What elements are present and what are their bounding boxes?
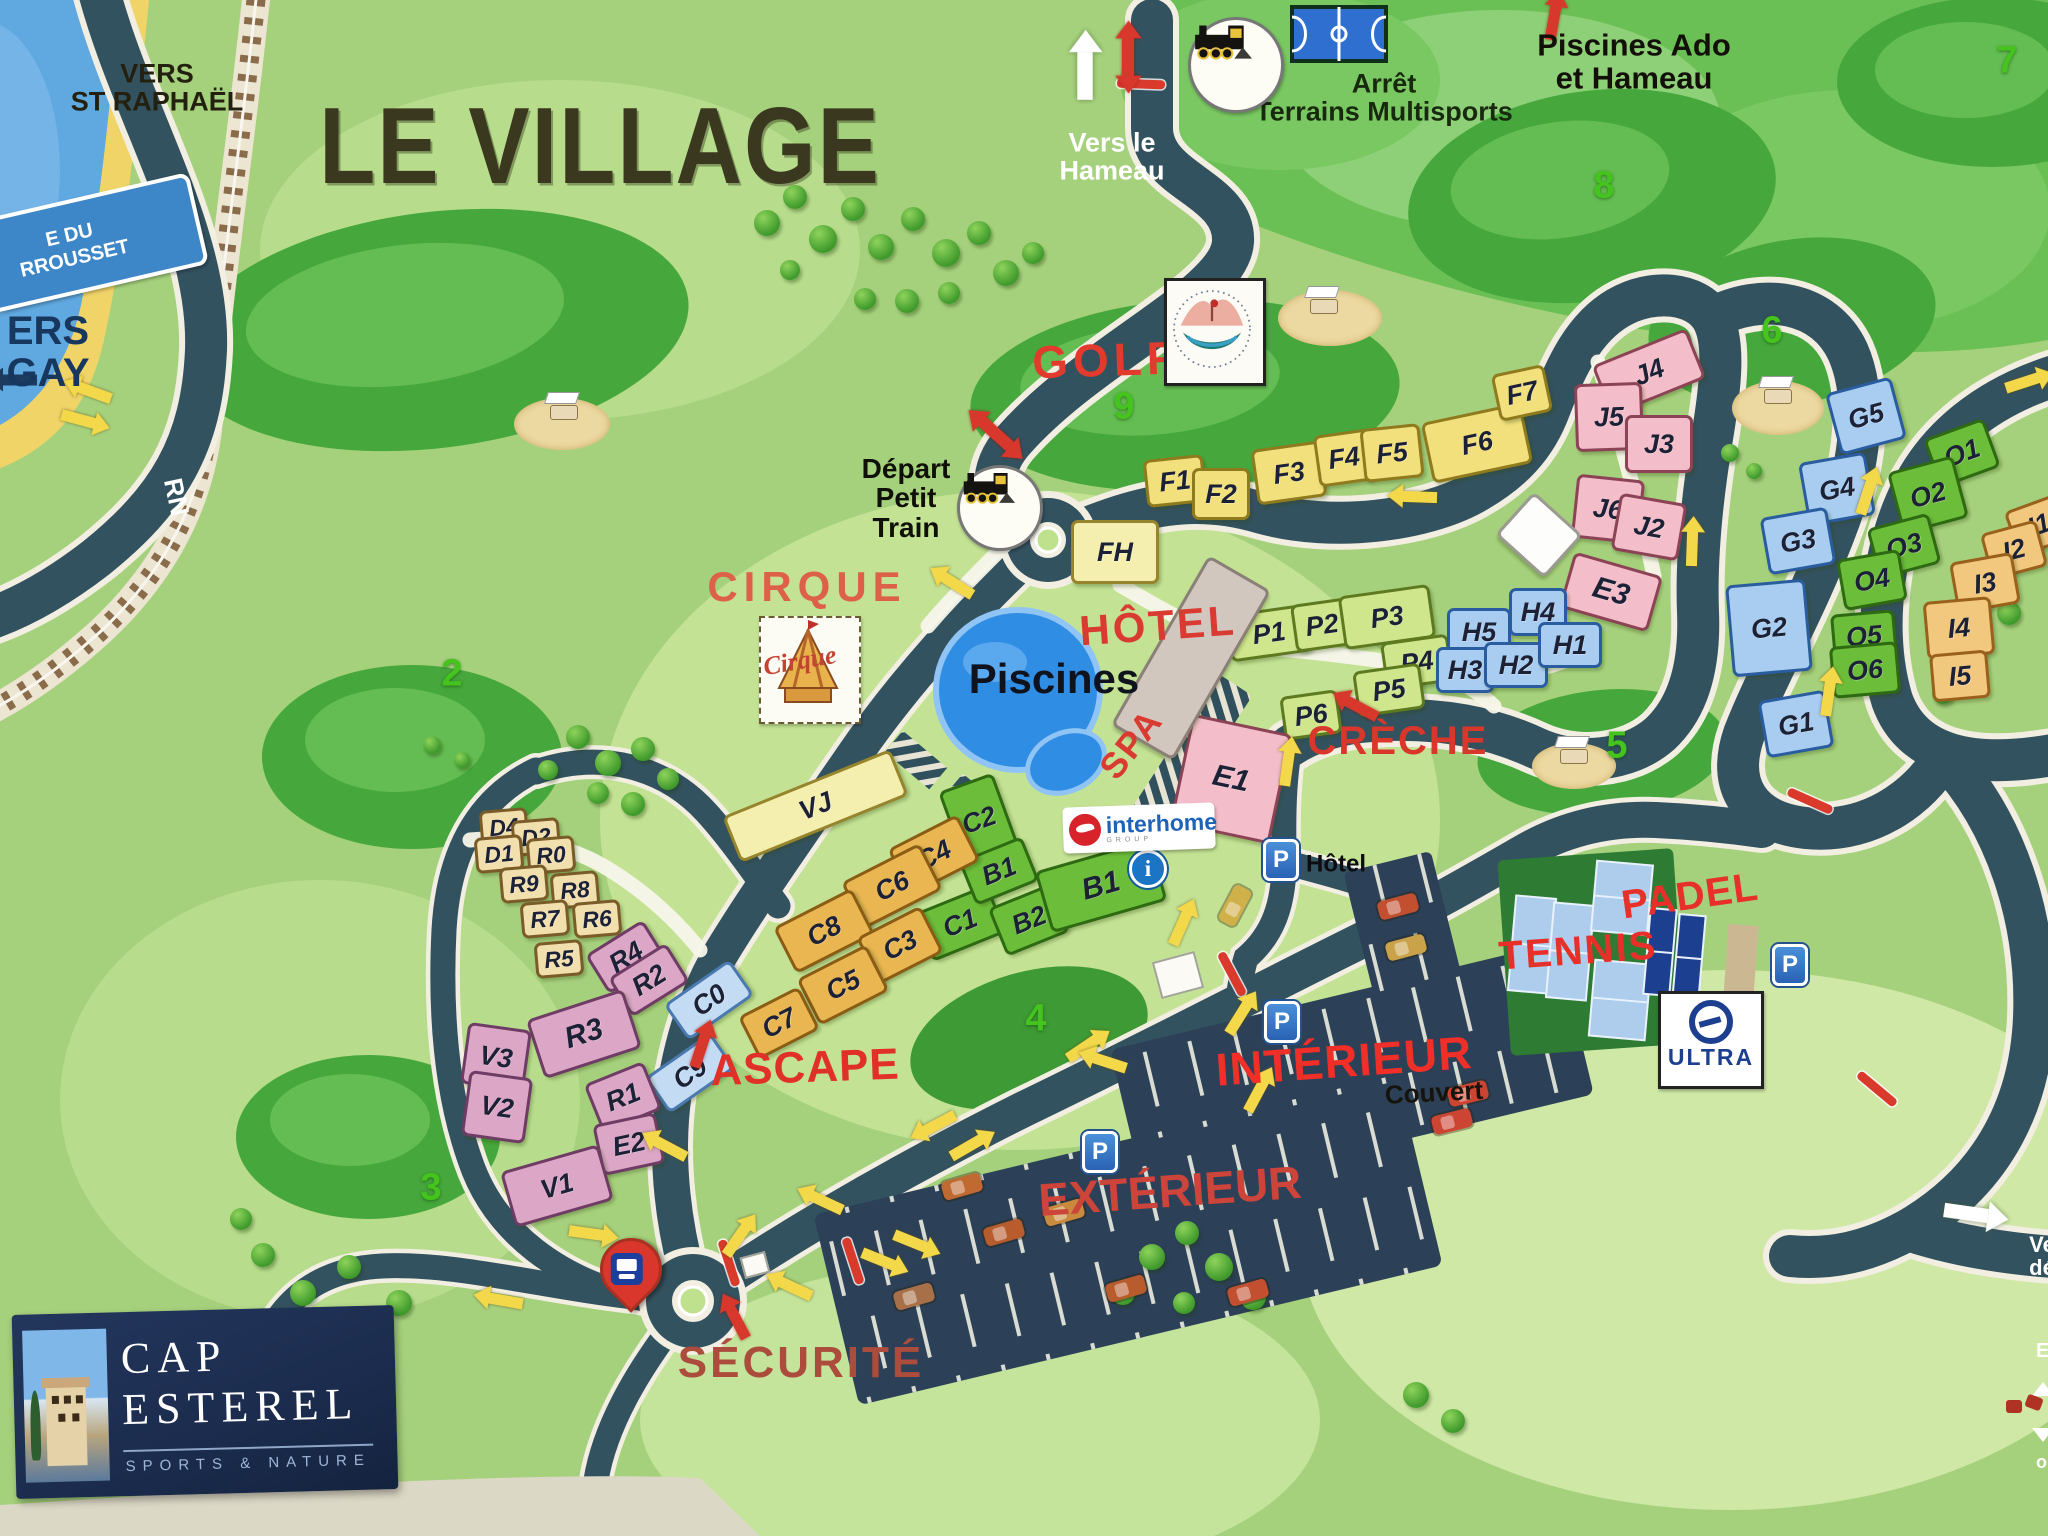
building-label: J5 — [1593, 401, 1624, 433]
golf-cart-icon — [1755, 376, 1797, 408]
tree — [967, 221, 991, 245]
golf-hole-number: 4 — [1025, 998, 1046, 1041]
label-cirque: CIRQUE — [707, 565, 906, 609]
direction-arrow — [1122, 38, 1134, 75]
building-label: F4 — [1326, 440, 1362, 475]
golf-cart-icon — [541, 392, 583, 424]
building-label: H2 — [1499, 650, 1534, 681]
edge-triangle-up — [2032, 1382, 2048, 1396]
train-stop-icon-depart — [957, 465, 1043, 551]
edge-legend-fragment: o — [2036, 1452, 2047, 1473]
golf-hole-number: 9 — [1113, 386, 1134, 429]
building-label: F5 — [1375, 436, 1410, 470]
building-label: F1 — [1158, 464, 1193, 498]
tree — [230, 1208, 252, 1230]
direction-arrow — [1077, 52, 1092, 100]
building-label: H3 — [1448, 655, 1483, 686]
tree — [1205, 1253, 1233, 1281]
tree — [938, 282, 960, 304]
building-label: F7 — [1503, 375, 1540, 412]
building-FH: FH — [1071, 520, 1159, 584]
golf-hole-number: 3 — [420, 1167, 441, 1210]
label-hotel-parking: Hôtel — [1306, 851, 1366, 876]
resort-map: F1F2F3F4F5F6F7FHVJP1P2P3P4P5P6J4J5J3J6J2… — [0, 0, 2048, 1536]
building-label: C5 — [821, 963, 866, 1006]
building-label: G4 — [1817, 471, 1858, 508]
building-label: C6 — [870, 864, 915, 907]
label-securite: SÉCURITÉ — [678, 1340, 924, 1386]
parking-icon: P — [1263, 839, 1299, 881]
tree — [1721, 444, 1739, 462]
tree — [657, 768, 679, 790]
ultra-e-icon — [1689, 1000, 1733, 1044]
info-icon: i — [1129, 850, 1167, 888]
cap-esterel-line1: CAP — [120, 1328, 358, 1385]
building-label: C8 — [802, 909, 847, 952]
building-label: E3 — [1589, 571, 1634, 614]
building-label: V1 — [537, 1167, 577, 1206]
building-label: F2 — [1205, 479, 1237, 510]
label-edge-right-directions: Ve dé — [2029, 1233, 2048, 1279]
train-stop-icon-hameau — [1188, 17, 1284, 113]
building-label: R7 — [529, 904, 561, 933]
building-label: O2 — [1907, 475, 1950, 514]
building-F5: F5 — [1359, 423, 1424, 483]
tree — [454, 752, 470, 768]
building-R5: R5 — [534, 939, 585, 979]
building-F2: F2 — [1192, 468, 1250, 520]
tree — [251, 1243, 275, 1267]
building-label: P3 — [1368, 599, 1405, 634]
interhome-name: interhome — [1105, 810, 1217, 837]
golf-cart-icon — [1551, 736, 1593, 768]
building-R6: R6 — [572, 899, 623, 939]
edge-triangle-down — [2032, 1428, 2048, 1442]
building-R9: R9 — [499, 864, 550, 904]
edge-legend-fragment: E — [2036, 1340, 2048, 1363]
building-label: I3 — [1971, 566, 1999, 600]
locomotive-icon — [960, 468, 1016, 506]
building-V2: V2 — [461, 1070, 534, 1144]
building-label: G3 — [1778, 523, 1819, 560]
direction-arrow — [1403, 491, 1437, 503]
cap-esterel-line2: ESTEREL — [122, 1379, 360, 1436]
building-label: F3 — [1271, 455, 1307, 490]
golf-hole-number: 5 — [1606, 725, 1627, 768]
parking-icon: P — [1772, 944, 1808, 986]
parking-icon: P — [1264, 1001, 1300, 1043]
golf-hole-number: 7 — [1996, 40, 2017, 83]
building-R7: R7 — [520, 899, 571, 939]
building-label: C3 — [878, 923, 923, 966]
label-creche: CRÈCHE — [1308, 720, 1489, 762]
tree — [809, 225, 837, 253]
tree — [754, 210, 780, 236]
building-label: C1 — [938, 902, 982, 944]
tree — [631, 737, 655, 761]
tree — [566, 725, 590, 749]
building-label: P1 — [1250, 615, 1287, 650]
tree — [1139, 1244, 1165, 1270]
tree — [538, 760, 558, 780]
tree — [1746, 463, 1762, 479]
label-piscines-ado: Piscines Ado et Hameau — [1537, 29, 1731, 94]
building-label: G1 — [1776, 706, 1817, 743]
building-label: R1 — [601, 1076, 645, 1118]
locomotive-icon — [1191, 20, 1253, 62]
tree — [595, 750, 621, 776]
building-H1: H1 — [1538, 622, 1602, 668]
tree — [1173, 1292, 1195, 1314]
tree — [868, 234, 894, 260]
building-O4: O4 — [1836, 549, 1908, 611]
building-label: V3 — [477, 1039, 514, 1074]
tree — [587, 782, 609, 804]
building-G2: G2 — [1725, 579, 1813, 678]
tree — [423, 736, 441, 754]
tree — [1403, 1382, 1429, 1408]
tree — [993, 260, 1019, 286]
label-couvert: Couvert — [1384, 1077, 1484, 1109]
cap-esterel-tagline: SPORTS & NATURE — [125, 1452, 371, 1475]
tree — [1441, 1409, 1465, 1433]
golf-club-logo — [1164, 278, 1266, 386]
building-label: VJ — [794, 785, 836, 826]
building-label: H1 — [1553, 630, 1588, 661]
label-rn: RN — [159, 476, 194, 518]
tree — [290, 1280, 316, 1306]
cap-esterel-photo — [22, 1329, 110, 1483]
tree — [854, 288, 876, 310]
building-label: J2 — [1632, 509, 1667, 545]
map-terrain — [0, 0, 2048, 1536]
golf-hole-number: 6 — [1761, 310, 1782, 353]
tree — [1022, 242, 1044, 264]
building-label: G5 — [1845, 396, 1888, 435]
tree — [1175, 1221, 1199, 1245]
building-label: I5 — [1947, 660, 1972, 693]
label-golf: GOLF — [1031, 333, 1180, 386]
golf-cart-icon — [1301, 286, 1343, 318]
building-label: B1 — [1078, 864, 1124, 907]
building-label: O4 — [1852, 562, 1893, 599]
direction-arrow — [1686, 532, 1698, 566]
building-label: R2 — [626, 958, 672, 1003]
label-vers-st-raphael: VERS ST RAPHAËL — [71, 60, 244, 117]
tree — [895, 289, 919, 313]
label-piscines: Piscines — [969, 657, 1139, 701]
building-G3: G3 — [1759, 507, 1836, 576]
cirque-tent-icon: Cirque — [759, 616, 861, 724]
tree — [621, 792, 645, 816]
label-le-village: LE VILLAGE — [319, 90, 881, 204]
tree — [932, 239, 960, 267]
building-label: P5 — [1370, 672, 1407, 707]
building-label: F6 — [1458, 425, 1495, 462]
building-label: R9 — [508, 869, 540, 898]
building-label: D1 — [483, 839, 515, 868]
building-label: R5 — [543, 944, 575, 973]
tree — [780, 260, 800, 280]
building-I5: I5 — [1929, 650, 1991, 703]
building-label: E1 — [1210, 759, 1253, 800]
building-label: R6 — [581, 904, 613, 933]
label-vers-le-hameau: Vers le Hameau — [1059, 129, 1164, 186]
tree — [337, 1255, 361, 1279]
building-label: C7 — [757, 1001, 802, 1044]
label-vers-agay: ERS GAY — [6, 310, 89, 394]
building-label: B1 — [977, 850, 1021, 892]
label-depart-petit-train: Départ Petit Train — [862, 454, 951, 542]
building-I4: I4 — [1923, 596, 1996, 660]
building-label: G2 — [1750, 611, 1789, 645]
golf-hole-number: 8 — [1593, 165, 1614, 208]
building-label: FH — [1097, 537, 1133, 568]
building-J2: J2 — [1610, 493, 1687, 562]
interhome-bird-icon — [1068, 813, 1101, 846]
ultra-logo: ULTRA — [1658, 991, 1764, 1089]
building-label: V2 — [478, 1089, 515, 1124]
building-label: J3 — [1644, 429, 1674, 460]
cap-esterel-logo: CAP ESTEREL SPORTS & NATURE — [12, 1305, 399, 1499]
building-label: O6 — [1846, 653, 1885, 687]
ultra-name: ULTRA — [1661, 1044, 1761, 1071]
tree — [901, 207, 925, 231]
building-label: R3 — [560, 1012, 607, 1056]
label-arret-terrains-multisports: Arrêt Terrains Multisports — [1255, 70, 1513, 127]
edge-red-marker — [2006, 1400, 2022, 1413]
parking-icon: P — [1082, 1131, 1118, 1173]
building-J3: J3 — [1625, 415, 1693, 473]
building-label: I4 — [1946, 612, 1971, 645]
label-ascape: ASCAPE — [710, 1042, 901, 1095]
golf-hole-number: 2 — [441, 653, 462, 696]
building-label: P2 — [1303, 607, 1340, 642]
interhome-logo: interhome GROUP — [1062, 802, 1216, 853]
